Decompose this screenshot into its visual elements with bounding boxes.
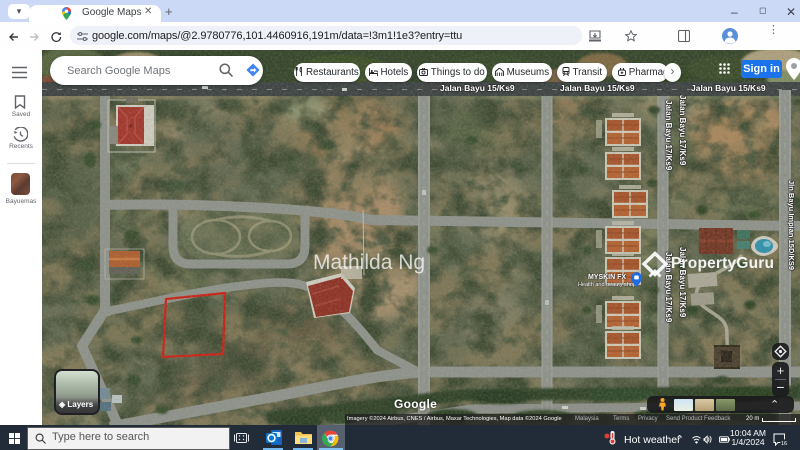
svg-text:16: 16 [781, 441, 787, 447]
